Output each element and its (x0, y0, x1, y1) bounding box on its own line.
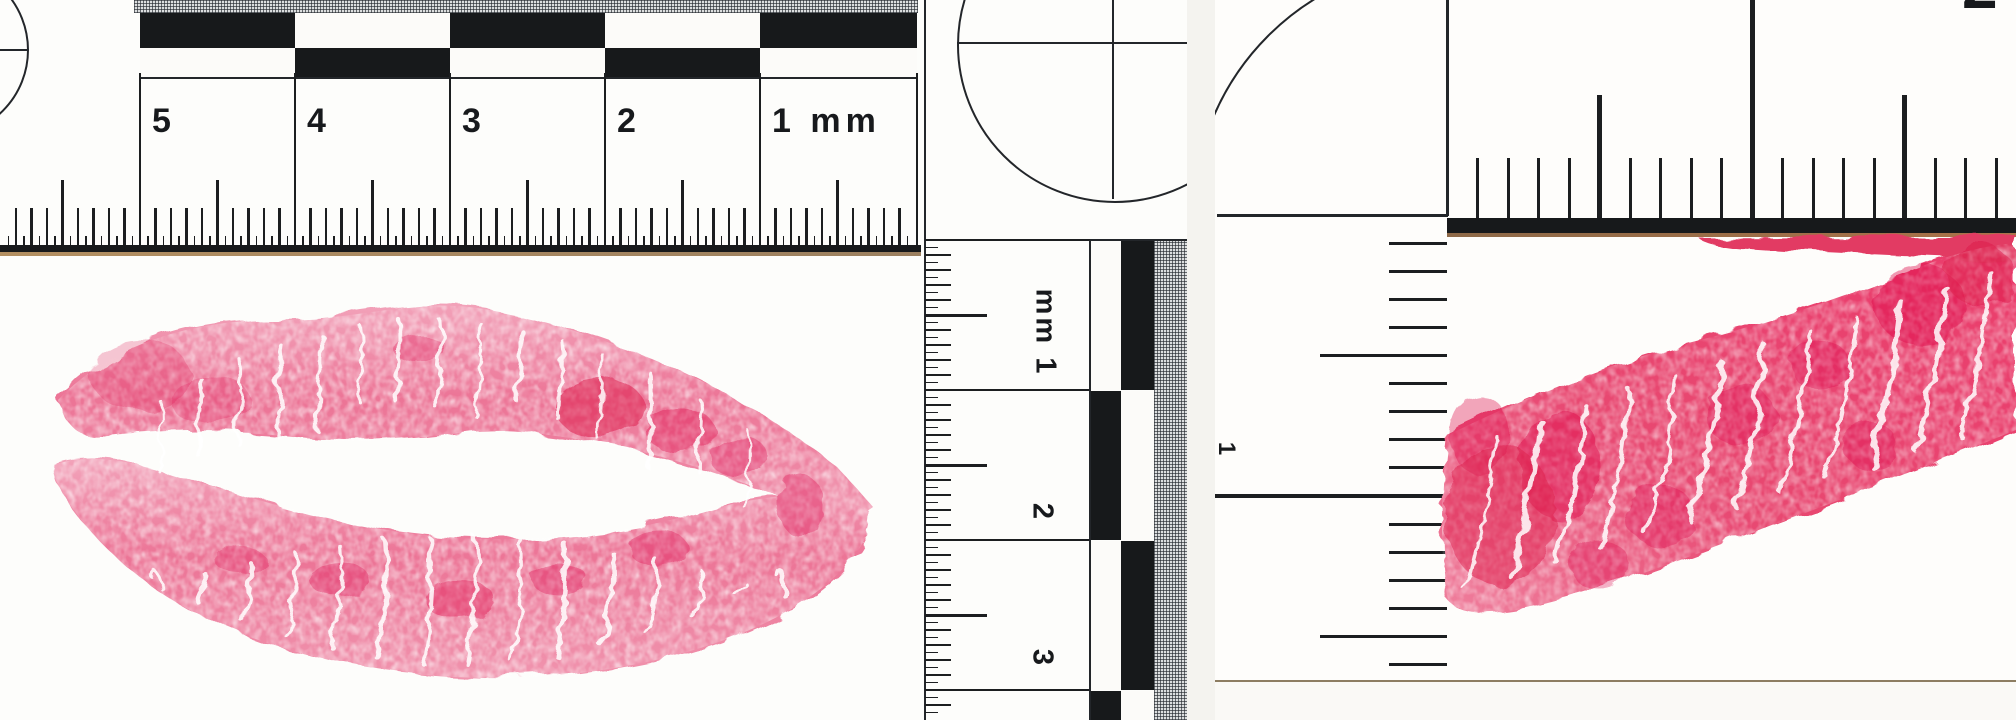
ruler-minor-tick (925, 554, 951, 556)
checker-cell (1121, 241, 1154, 390)
ruler-minor-tick (925, 524, 951, 526)
ruler-minor-tick (1389, 551, 1447, 554)
ruler-minor-tick (925, 644, 951, 646)
checker-cell (1121, 391, 1154, 540)
ruler-minor-tick (1389, 326, 1447, 329)
checker-cell (1091, 241, 1121, 390)
ruler-fine-tick (925, 622, 938, 624)
right-photo-partial-lip-print-card: 2 1 (1215, 0, 2016, 720)
ruler-minor-tick (925, 584, 951, 586)
ruler-fine-tick (925, 367, 938, 369)
checker-cell (1121, 541, 1154, 690)
ruler-fine-tick (925, 637, 938, 639)
ruler-fine-tick (925, 517, 938, 519)
ruler-fine-tick (925, 262, 938, 264)
ruler-fine-tick (925, 337, 938, 339)
ruler-division-line (925, 389, 1090, 391)
ruler-minor-tick (925, 419, 951, 421)
ruler-minor-tick (925, 509, 951, 511)
ruler-fine-tick (925, 352, 938, 354)
ruler-minor-tick (1389, 523, 1447, 526)
side-scale-halftone-column (1154, 241, 1187, 720)
ruler-medium-tick (925, 314, 987, 317)
side-scale-inner-line (1089, 240, 1091, 720)
ruler-fine-tick (925, 382, 938, 384)
ruler-fine-tick (925, 547, 938, 549)
ruler-fine-tick (925, 247, 938, 249)
ruler-fine-tick (925, 697, 938, 699)
ruler-minor-tick (925, 479, 951, 481)
ruler-minor-tick (925, 629, 951, 631)
below-photo-area (1215, 682, 2016, 720)
ruler-fine-tick (925, 682, 938, 684)
ruler-fine-tick (925, 472, 938, 474)
ruler-fine-tick (925, 562, 938, 564)
ruler-minor-tick (925, 569, 951, 571)
ruler-minor-tick (1389, 663, 1447, 666)
ruler-minor-tick (925, 284, 951, 286)
ruler-minor-tick (1389, 270, 1447, 273)
side-ruler-label: 2 (1028, 493, 1057, 533)
ruler-minor-tick (925, 494, 951, 496)
left-photo-kiss-print-card: 5 4 3 2 1 mm mm 1 2 3 (0, 0, 1187, 720)
ruler-minor-tick (1389, 298, 1447, 301)
ruler-minor-tick (925, 329, 951, 331)
ruler-fine-tick (925, 502, 938, 504)
checker-cell (1121, 691, 1154, 720)
side-ruler-label: mm 1 (1031, 283, 1060, 383)
ruler-minor-tick (925, 254, 951, 256)
ruler-medium-tick (1320, 635, 1447, 639)
ruler-minor-tick (1389, 410, 1447, 413)
ruler-minor-tick (1389, 607, 1447, 610)
ruler-division-line (925, 539, 1090, 541)
scanner-gap (1187, 0, 1215, 720)
ruler-fine-tick (925, 457, 938, 459)
lip-print-full-kiss (40, 280, 890, 690)
ruler-fine-tick (925, 322, 938, 324)
ruler-fine-tick (925, 442, 938, 444)
ruler-fine-tick (925, 532, 938, 534)
ruler-fine-tick (925, 607, 938, 609)
ruler-minor-tick (925, 269, 951, 271)
ruler-major-tick (1215, 494, 1447, 498)
ruler-minor-tick (1389, 466, 1447, 469)
ruler-medium-tick (1320, 354, 1447, 358)
ruler-minor-tick (1389, 382, 1447, 385)
ruler-minor-tick (925, 449, 951, 451)
ruler-minor-tick (925, 404, 951, 406)
ruler-medium-tick (925, 614, 987, 617)
ruler-division-line (925, 689, 1090, 691)
ruler-fine-tick (925, 592, 938, 594)
ruler-fine-tick (925, 397, 938, 399)
ruler-minor-tick (925, 599, 951, 601)
checker-cell (1091, 391, 1121, 540)
checker-cell (1091, 691, 1121, 720)
ruler-minor-tick (925, 374, 951, 376)
ruler-minor-tick (925, 704, 951, 706)
ruler-fine-tick (925, 427, 938, 429)
ruler-minor-tick (925, 344, 951, 346)
ruler-medium-tick (925, 464, 987, 467)
ruler-minor-tick (1389, 579, 1447, 582)
ruler-division-line (925, 239, 1090, 241)
ruler-minor-tick (925, 674, 951, 676)
ruler-fine-tick (925, 292, 938, 294)
ruler-fine-tick (925, 652, 938, 654)
ruler-minor-tick (925, 434, 951, 436)
ruler-fine-tick (925, 307, 938, 309)
ruler-fine-tick (925, 667, 938, 669)
ruler-fine-tick (925, 577, 938, 579)
ruler-minor-tick (925, 359, 951, 361)
checker-cell (1091, 541, 1121, 690)
ruler-minor-tick (1389, 242, 1447, 245)
ruler-fine-tick (925, 277, 938, 279)
ruler-minor-tick (925, 299, 951, 301)
ruler-fine-tick (925, 712, 938, 714)
ruler-minor-tick (1389, 438, 1447, 441)
ruler-fine-tick (925, 412, 938, 414)
ruler-minor-tick (925, 659, 951, 661)
scanned-evidence-sheet: 5 4 3 2 1 mm mm 1 2 3 (0, 0, 2016, 720)
side-ruler-label: 1 (1214, 435, 1238, 465)
side-ruler-label: 3 (1028, 639, 1057, 679)
ruler-fine-tick (925, 487, 938, 489)
lip-print-partial-band (1440, 185, 2016, 645)
ruler-number-large: 2 (1962, 0, 1998, 18)
